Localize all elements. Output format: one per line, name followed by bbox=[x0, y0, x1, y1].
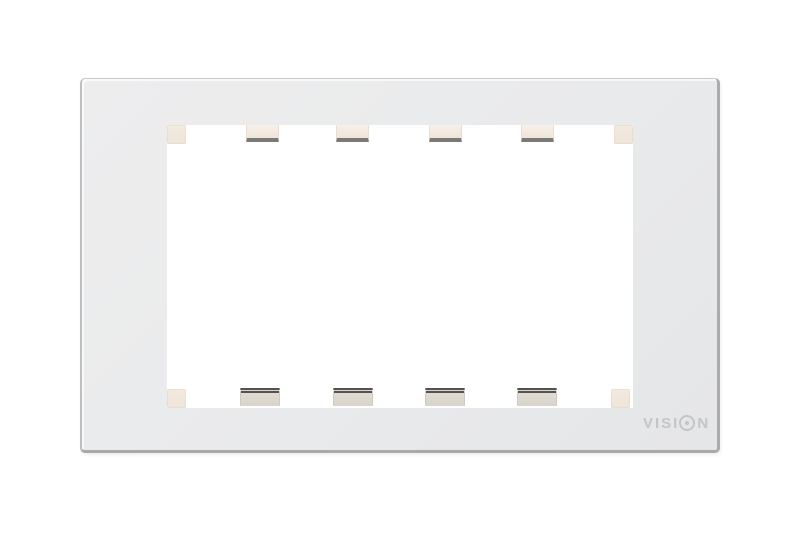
corner-tab-top-right bbox=[614, 125, 633, 144]
corner-tab-top-left bbox=[167, 125, 186, 144]
logo-text-suffix: N bbox=[697, 415, 710, 432]
lens-o-icon bbox=[679, 415, 695, 431]
corner-tab-bottom-right bbox=[611, 389, 630, 408]
bottom-clip-1 bbox=[240, 388, 280, 406]
bottom-clip-3 bbox=[425, 388, 465, 406]
top-clip-1 bbox=[246, 125, 279, 142]
top-clip-2 bbox=[336, 125, 369, 142]
bottom-clip-2 bbox=[333, 388, 373, 406]
top-clip-3 bbox=[429, 125, 462, 142]
top-clip-4 bbox=[521, 125, 554, 142]
lens-dot-icon bbox=[685, 421, 689, 425]
product-photo: VISI N bbox=[0, 0, 800, 533]
vision-logo: VISI N bbox=[643, 413, 710, 433]
module-aperture bbox=[167, 125, 633, 408]
corner-tab-bottom-left bbox=[167, 389, 186, 408]
logo-text-prefix: VISI bbox=[643, 415, 679, 432]
bottom-clip-4 bbox=[517, 388, 557, 406]
